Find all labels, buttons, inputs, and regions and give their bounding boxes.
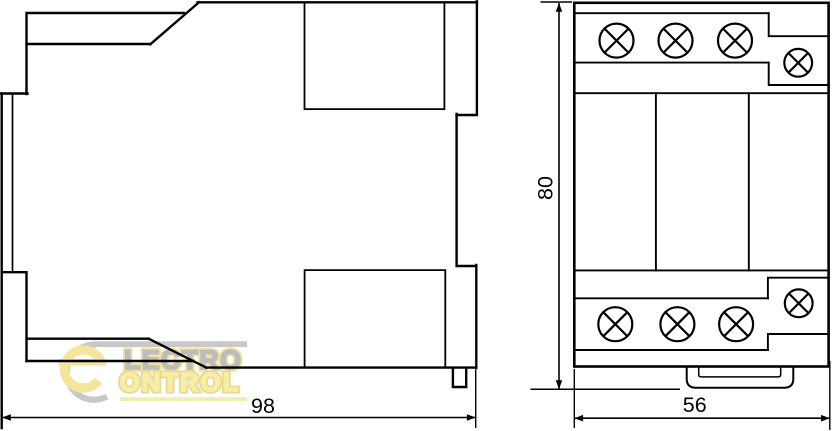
- svg-text:ONTROL: ONTROL: [120, 367, 241, 397]
- svg-text:56: 56: [683, 393, 707, 417]
- svg-text:80: 80: [534, 176, 558, 200]
- svg-text:98: 98: [251, 394, 275, 418]
